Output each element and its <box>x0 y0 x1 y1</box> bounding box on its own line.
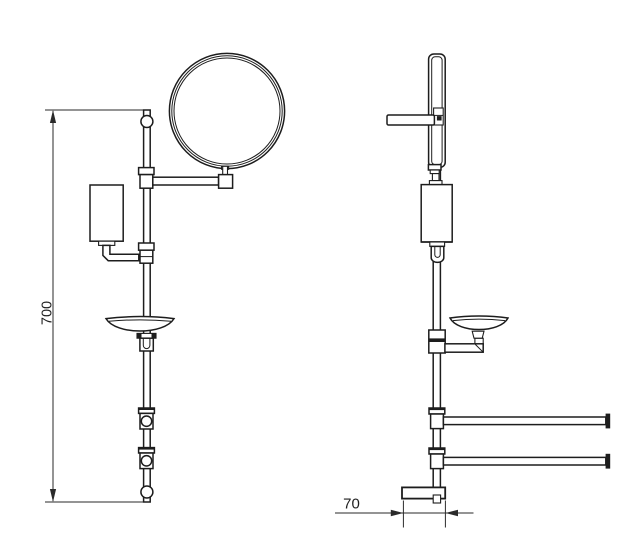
towel-mount-cap-edge <box>139 408 155 410</box>
mirror-stem <box>223 166 228 175</box>
technical-drawing-canvas: 700 <box>0 0 640 543</box>
dish-arm-bar <box>445 344 483 352</box>
dish-bowl <box>106 317 174 331</box>
depth-dim-label: 70 <box>343 496 360 513</box>
side-view: 70 <box>335 54 610 528</box>
side-base-bracket <box>402 487 445 503</box>
front-pole-bottom-ball <box>141 486 153 498</box>
neck-stem <box>432 174 439 181</box>
towel-bar-end-cap <box>606 454 611 469</box>
dish-collar-band <box>429 338 445 342</box>
depth-dimension: 70 <box>335 496 474 528</box>
front-mirror-arm <box>139 168 233 189</box>
dispenser-spout-side <box>431 246 444 262</box>
mirror-arm-bar <box>153 177 219 185</box>
front-soap-dish <box>106 317 174 351</box>
mirror-arm-screw <box>437 116 442 120</box>
height-dimension: 700 <box>40 110 150 502</box>
dispenser-collar-cap <box>139 243 154 250</box>
side-towel-bar-upper <box>429 408 610 429</box>
towel-collar-cap-edge <box>429 448 445 450</box>
side-mirror <box>387 54 445 167</box>
dish-clamp-screw-left <box>137 334 141 339</box>
towel-bar-end-circle <box>141 416 151 426</box>
height-dim-label: 700 <box>40 301 56 325</box>
neck-collar <box>428 165 441 170</box>
front-towel-mount-upper <box>139 408 155 429</box>
front-pole-top-ball <box>141 116 153 128</box>
height-dim-arrow-down <box>50 489 56 502</box>
side-towel-bar-lower <box>429 448 610 469</box>
towel-mount-cap-edge <box>139 448 155 450</box>
mirror-outer-ring <box>169 53 284 168</box>
front-view: 700 <box>40 53 285 502</box>
mirror-arm-end-block <box>219 175 233 189</box>
towel-bar <box>443 457 605 465</box>
dispenser-body-side <box>421 185 452 242</box>
mirror-arm-collar <box>140 175 153 189</box>
depth-dim-arrow-left <box>445 510 458 516</box>
towel-collar-body <box>431 454 444 469</box>
dish-stem-side <box>472 331 484 338</box>
towel-bar-end-circle <box>141 456 151 466</box>
base-hook <box>433 495 440 503</box>
height-dim-arrow-up <box>50 110 56 123</box>
towel-bar <box>443 417 605 425</box>
front-towel-mount-lower <box>139 448 155 469</box>
side-soap-dispenser <box>421 185 452 263</box>
towel-collar-cap-edge <box>429 408 445 410</box>
mirror-arm-collar-cap <box>139 168 154 175</box>
dish-bowl-side <box>450 316 508 330</box>
side-mirror-arm <box>387 115 434 125</box>
drawing-svg: 700 <box>0 0 640 543</box>
towel-bar-end-cap <box>606 414 611 429</box>
towel-collar-body <box>431 414 444 429</box>
dispenser-spout-pipe <box>103 245 139 260</box>
front-mirror <box>169 53 284 175</box>
dispenser-body <box>90 185 123 241</box>
dish-clamp-screw-right <box>152 334 156 339</box>
depth-dim-arrow-right <box>391 510 404 516</box>
